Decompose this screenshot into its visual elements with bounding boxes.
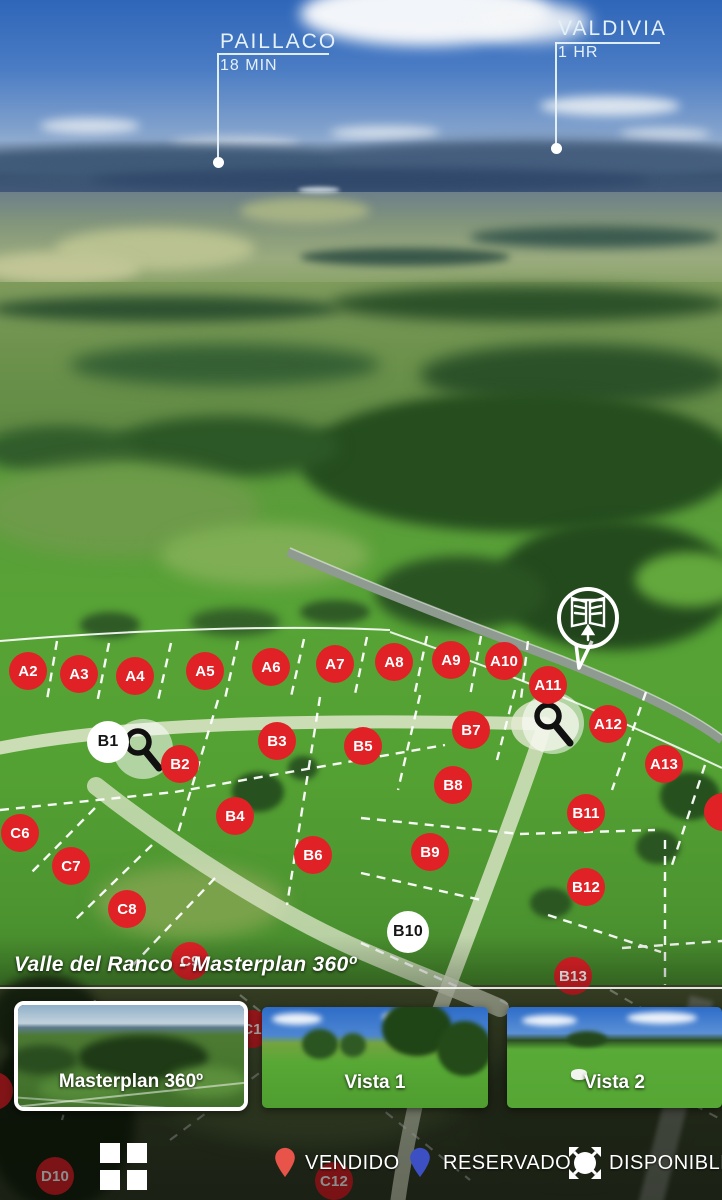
thumbnail-vista-2[interactable]: Vista 2: [507, 1007, 722, 1108]
masterplan-screen: B13C9C19C12D10 PAILLACO 18 MIN VALDIVIA …: [0, 0, 722, 1200]
thumbnail-label: Masterplan 360º: [18, 1071, 244, 1093]
legend-label-vendido: VENDIDO: [305, 1153, 400, 1173]
thumbnail-masterplan[interactable]: Masterplan 360º: [14, 1001, 248, 1111]
legend-label-reservado: RESERVADO: [443, 1153, 571, 1173]
thumbnail-label: Vista 2: [507, 1072, 722, 1094]
thumbnail-label: Vista 1: [262, 1072, 488, 1094]
sold-pin-icon: [271, 1146, 299, 1180]
legend-label-disponible: DISPONIBLE: [609, 1153, 722, 1173]
reserved-pin-icon: [406, 1146, 434, 1180]
thumbnail-vista-1[interactable]: Vista 1: [262, 1007, 488, 1108]
available-pano-icon: [563, 1141, 607, 1185]
